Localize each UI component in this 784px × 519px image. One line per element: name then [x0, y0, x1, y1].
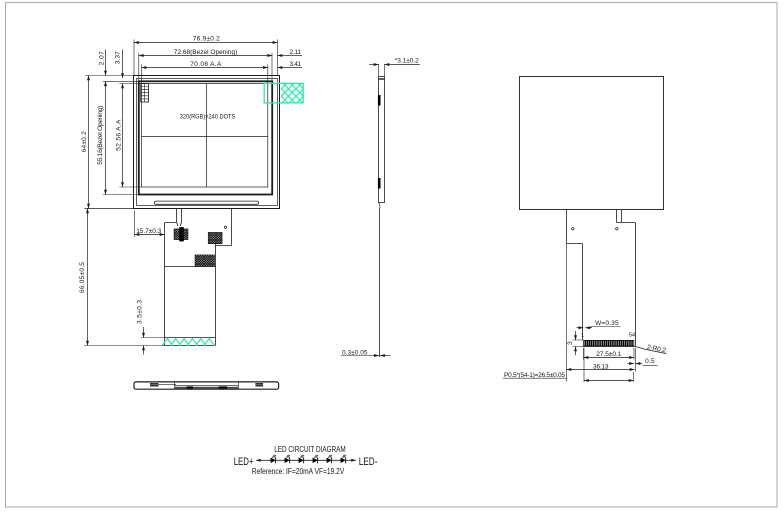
svg-text:55.16(Bezel Opening): 55.16(Bezel Opening): [97, 106, 104, 165]
svg-text:LED+: LED+: [234, 456, 254, 468]
svg-text:70.08 A.A: 70.08 A.A: [190, 61, 222, 68]
svg-text:15.7±0.3: 15.7±0.3: [136, 228, 161, 235]
svg-text:3.5±0.3: 3.5±0.3: [136, 300, 143, 324]
svg-text:72.68(Bezel Opening): 72.68(Bezel Opening): [174, 49, 238, 56]
svg-text:27.5±0.1: 27.5±0.1: [596, 351, 621, 358]
svg-text:320(RGB)×240 DOTS: 320(RGB)×240 DOTS: [180, 114, 236, 121]
svg-text:36.13: 36.13: [593, 364, 609, 371]
svg-text:LED-: LED-: [359, 456, 378, 468]
svg-text:3.37: 3.37: [114, 51, 121, 64]
svg-text:64±0.2: 64±0.2: [81, 131, 88, 152]
svg-text:1: 1: [581, 333, 584, 339]
svg-text:*3.1±0.2: *3.1±0.2: [395, 58, 419, 65]
svg-text:0.3±0.05: 0.3±0.05: [342, 350, 368, 357]
svg-text:2.07: 2.07: [98, 51, 105, 65]
svg-text:76.9±0.2: 76.9±0.2: [193, 36, 220, 43]
svg-text:3.41: 3.41: [290, 61, 302, 68]
svg-text:Reference: IF=20mA VF=19.2V: Reference: IF=20mA VF=19.2V: [252, 467, 345, 476]
svg-text:W=0.35: W=0.35: [595, 320, 619, 327]
svg-text:LED CIRCUIT DIAGRAM: LED CIRCUIT DIAGRAM: [274, 445, 346, 454]
svg-text:0.5: 0.5: [645, 358, 655, 365]
svg-text:66.05±0.5: 66.05±0.5: [79, 262, 86, 293]
svg-text:52.56 A.A: 52.56 A.A: [116, 119, 123, 151]
svg-text:54: 54: [629, 333, 636, 339]
svg-text:2.11: 2.11: [290, 49, 302, 56]
svg-text:3: 3: [567, 341, 574, 345]
